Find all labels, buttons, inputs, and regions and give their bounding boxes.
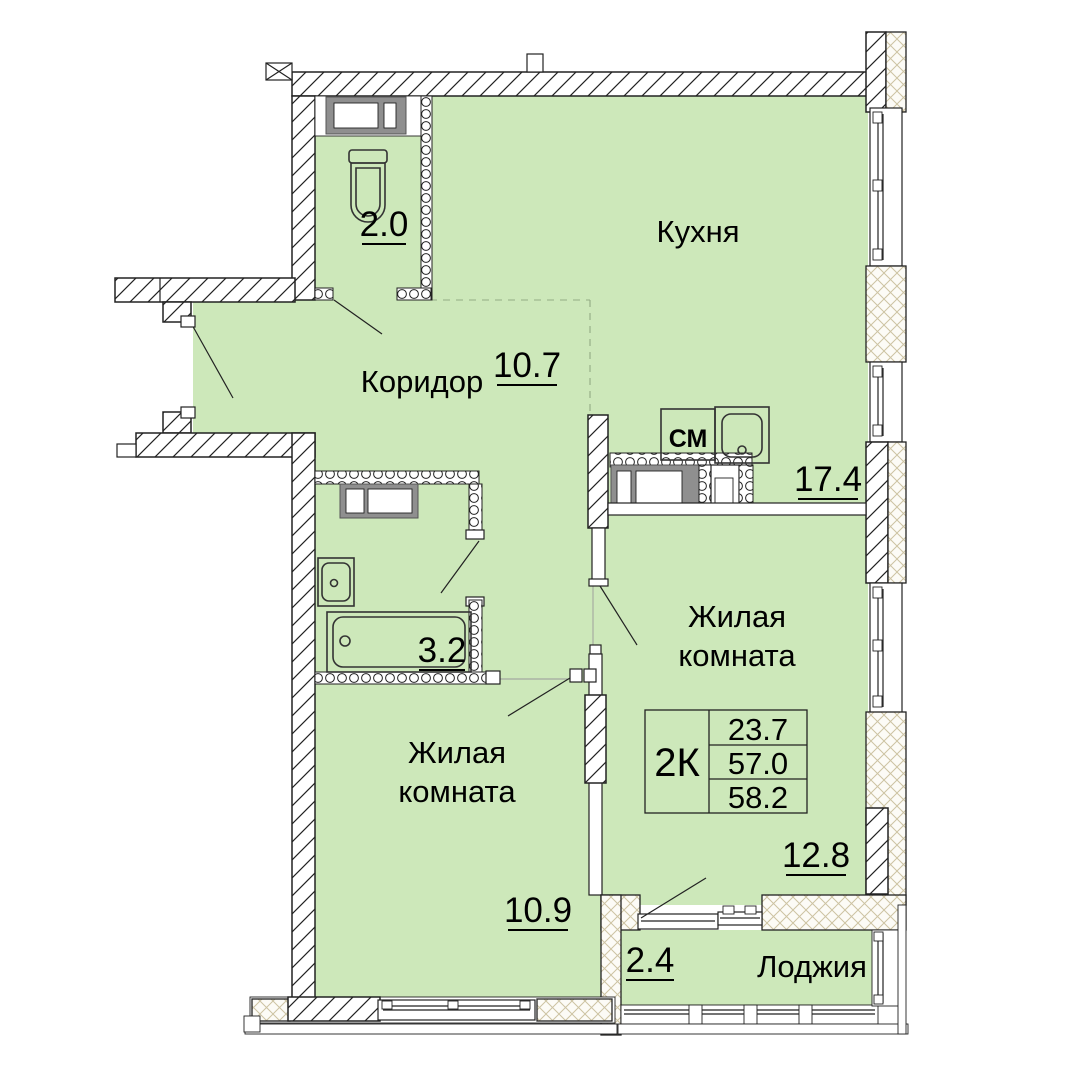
window-handle	[448, 1001, 458, 1009]
washing-machine-label: СМ	[669, 425, 708, 453]
bottom-pier-corner	[288, 997, 380, 1021]
vent-shaft-inner	[715, 478, 733, 506]
right-facade	[866, 108, 906, 905]
loggia-area-label: 2.4	[626, 941, 675, 980]
loggia-name-label: Лоджия	[757, 949, 867, 984]
facade-pier	[866, 266, 906, 362]
toilet-area-label: 2.0	[360, 205, 409, 244]
window-handle	[745, 906, 756, 914]
top-right-column-inner	[866, 32, 886, 112]
loggia-right-outer-band	[898, 905, 906, 1034]
window-handle	[873, 180, 882, 191]
toilet-window-pane	[334, 103, 378, 128]
glazing-mullion	[689, 1005, 702, 1024]
kitchen-area-label: 17.4	[794, 460, 862, 499]
bathroom-right-wall-upper	[469, 484, 482, 537]
bottom-facade	[244, 997, 617, 1034]
toilet-kitchen-partition	[421, 96, 432, 300]
glazing-mullion	[799, 1005, 812, 1024]
toilet-left-wall	[292, 96, 315, 300]
toilet-window-pane	[384, 103, 396, 128]
living-divider-wall-hatched	[585, 695, 606, 783]
living-left-door-hinge	[584, 669, 596, 682]
top-right-column-outer	[886, 32, 906, 112]
duct-pane	[636, 471, 682, 506]
corridor-name-label: Коридор	[361, 364, 483, 399]
bottom-outer-band	[245, 1024, 617, 1034]
living-right-name-line2: комната	[678, 638, 796, 673]
bathroom-door-jamb	[466, 530, 484, 539]
kitchen-living-wall	[608, 503, 866, 515]
summary-value-cell: 58.2	[728, 780, 788, 815]
kitchen-name-label: Кухня	[657, 214, 740, 249]
bathroom-top-wall	[315, 471, 479, 484]
loggia-wall-right-segment	[762, 895, 906, 930]
living-right-name-line1: Жилая	[688, 599, 786, 634]
window-handle	[873, 249, 882, 260]
entry-upper-wall	[115, 278, 295, 302]
corridor-area-label: 10.7	[493, 346, 561, 385]
window-handle	[874, 932, 883, 941]
duct-pane	[346, 489, 364, 513]
top-wall-vent-box	[527, 54, 543, 72]
bathroom-area-label: 3.2	[418, 631, 467, 670]
toilet-door-jamb-left	[315, 288, 333, 300]
left-wall	[292, 433, 315, 1005]
bottom-left-cap	[244, 1016, 260, 1032]
living-left-name-line1: Жилая	[408, 735, 506, 770]
corridor-living-wall	[588, 415, 608, 528]
living-right-door-jamb	[589, 579, 608, 586]
bathroom-bottom-wall	[315, 672, 487, 684]
window-handle	[382, 1001, 392, 1009]
entry-lower-wall	[136, 433, 315, 457]
unit-type-cell: 2К	[654, 741, 700, 785]
entry-lower-wall-cap	[117, 444, 136, 457]
loggia-outer-band	[618, 1024, 908, 1034]
toilet-door-jamb-right	[397, 288, 431, 300]
window-handle	[873, 587, 882, 598]
duct-pane	[617, 471, 631, 506]
summary-value-cell: 23.7	[728, 712, 788, 747]
window-handle	[873, 112, 882, 123]
glazing-mullion	[744, 1005, 757, 1024]
floorplan-drawing: СМ	[0, 0, 1080, 1080]
window-handle	[873, 640, 882, 651]
living-left-area-label: 10.9	[504, 891, 572, 930]
window-handle	[873, 366, 882, 377]
summary-value-cell: 57.0	[728, 746, 788, 781]
floorplan-page: СМ	[0, 0, 1080, 1080]
window-handle	[723, 906, 734, 914]
bathroom-wall-cap	[486, 671, 500, 684]
facade-pier-outer	[888, 442, 906, 583]
living-right-area-label: 12.8	[782, 836, 850, 875]
entry-door-jamb	[181, 407, 195, 418]
window-handle	[873, 425, 882, 436]
facade-pier-bottom-inner	[866, 808, 888, 894]
facade-pier-inner	[866, 442, 888, 583]
duct-pane	[368, 489, 412, 513]
living-left-name-line2: комната	[398, 774, 516, 809]
entry-door-jamb	[181, 316, 195, 327]
window-handle	[520, 1001, 530, 1009]
living-right-door-leaf	[592, 528, 605, 580]
window-handle	[873, 696, 882, 707]
window-handle	[874, 995, 883, 1004]
top-wall	[292, 72, 868, 96]
living-left-door-hinge	[570, 669, 582, 682]
bottom-pier	[537, 999, 612, 1021]
living-wall-cap	[590, 645, 601, 654]
